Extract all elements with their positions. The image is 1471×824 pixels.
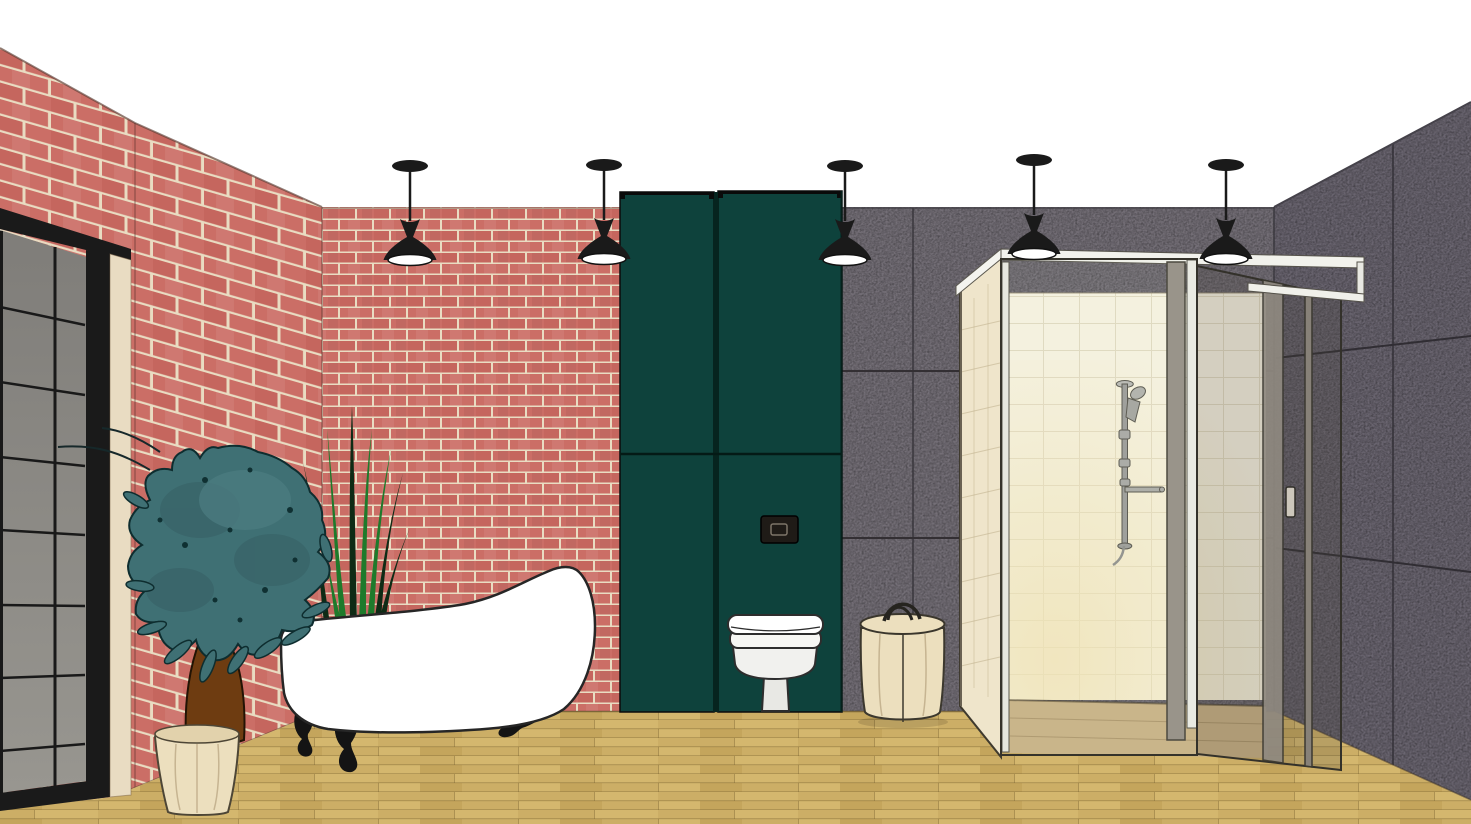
walk-in-shower [956, 249, 1364, 770]
shower-front-glass [1001, 259, 1197, 755]
flush-plate [761, 516, 798, 543]
screenshot-root [0, 0, 1471, 824]
lamp-opening [388, 255, 432, 266]
lamp-opening [1012, 249, 1056, 260]
door-handle [1286, 487, 1295, 517]
brick-jamb [110, 254, 131, 797]
lamp-opening [1204, 254, 1248, 265]
bathroom-3d-scene [0, 0, 1471, 824]
stool-lid [861, 614, 945, 634]
lamp-opening [823, 255, 867, 266]
partition-glass [0, 230, 86, 793]
door-frame-bar [1263, 280, 1283, 763]
sliding-glass-door [1197, 266, 1341, 770]
shower-side-panel [960, 253, 1001, 757]
door-frame-bar [1305, 289, 1312, 767]
planter-pot [155, 725, 239, 815]
lamp-opening [582, 254, 626, 265]
glass-partition [0, 208, 131, 811]
wooden-stool-basket [858, 604, 948, 728]
partition-stile [86, 250, 110, 797]
